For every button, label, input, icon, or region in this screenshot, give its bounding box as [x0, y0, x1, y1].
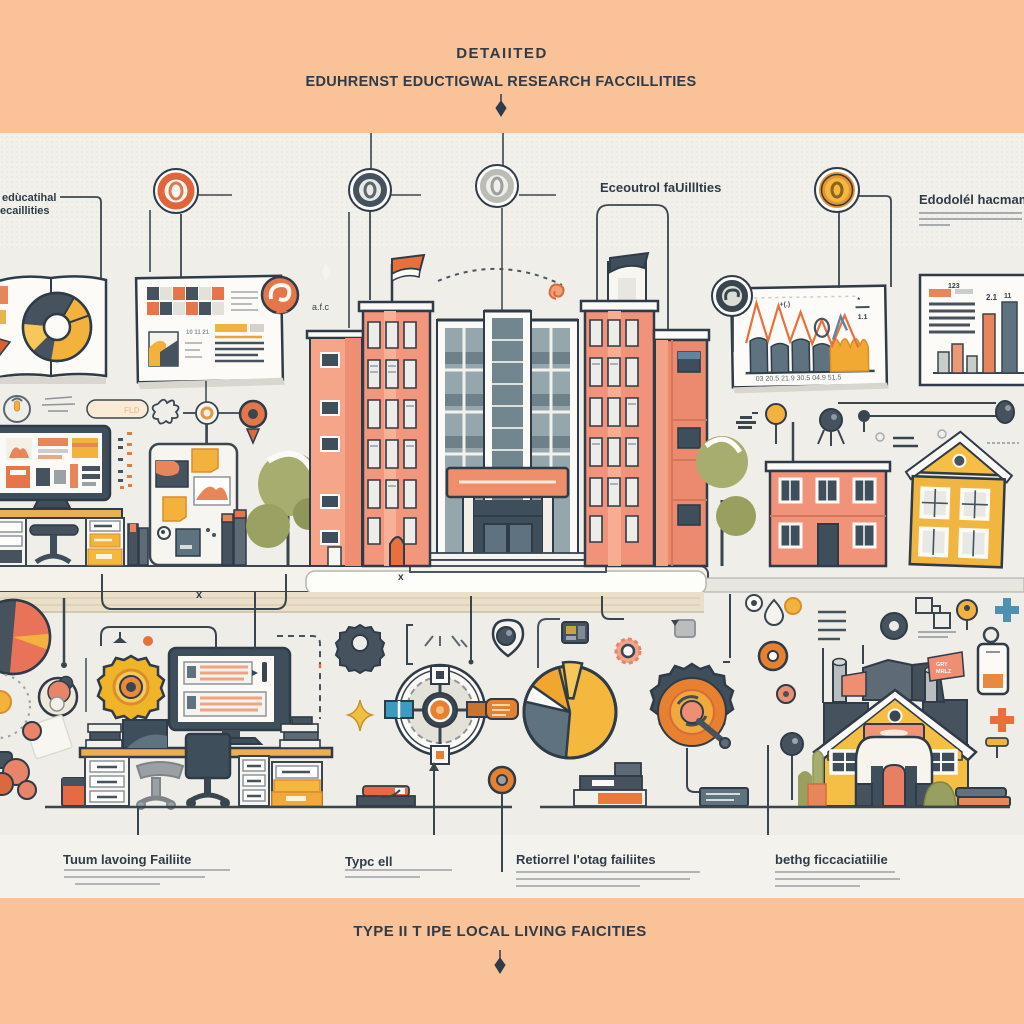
svg-text:a.f.c: a.f.c	[312, 302, 330, 312]
svg-text:2.1: 2.1	[986, 293, 998, 302]
svg-text:ecaillities: ecaillities	[0, 205, 50, 217]
svg-text:Edodolél hacmam: Edodolél hacmam	[919, 192, 1024, 207]
svg-text:EDUHRENST EDUCTIGWAL RESEARCH: EDUHRENST EDUCTIGWAL RESEARCH FACCILLITI…	[306, 74, 697, 90]
svg-text:1.1: 1.1	[858, 314, 868, 321]
svg-text:DETAIITED: DETAIITED	[456, 45, 548, 62]
svg-text:FLD: FLD	[124, 406, 140, 415]
svg-text:edùcatihal: edùcatihal	[2, 192, 56, 204]
svg-text:Tuum lavoing Failiite: Tuum lavoing Failiite	[63, 852, 191, 867]
svg-text:x: x	[196, 589, 203, 601]
svg-text:Retiorrel l'otag failiites: Retiorrel l'otag failiites	[516, 852, 656, 867]
svg-text:*: *	[857, 297, 860, 304]
svg-text:x: x	[398, 572, 404, 583]
svg-text:TYPE II T IPE LOCAL LIVING FAI: TYPE II T IPE LOCAL LIVING FAICITIES	[353, 923, 646, 940]
svg-text:Typc ell: Typc ell	[345, 854, 392, 869]
svg-text:Eceoutrol faUilllties: Eceoutrol faUilllties	[600, 180, 721, 195]
svg-text:11: 11	[1004, 293, 1012, 300]
svg-text:123: 123	[948, 283, 960, 290]
svg-text:+(.): +(.)	[779, 301, 790, 308]
svg-text:03 20.5 21.9 30.5 04.9 51: 03 20.5 21.9 30.5 04.9 51.5	[756, 374, 842, 382]
svg-text:bethg ficcaciatiilie: bethg ficcaciatiilie	[775, 852, 888, 867]
svg-text:10 11 21: 10 11 21	[186, 330, 210, 336]
svg-text:GRY: GRY	[936, 662, 948, 668]
svg-text:MRLZ: MRLZ	[936, 669, 952, 675]
